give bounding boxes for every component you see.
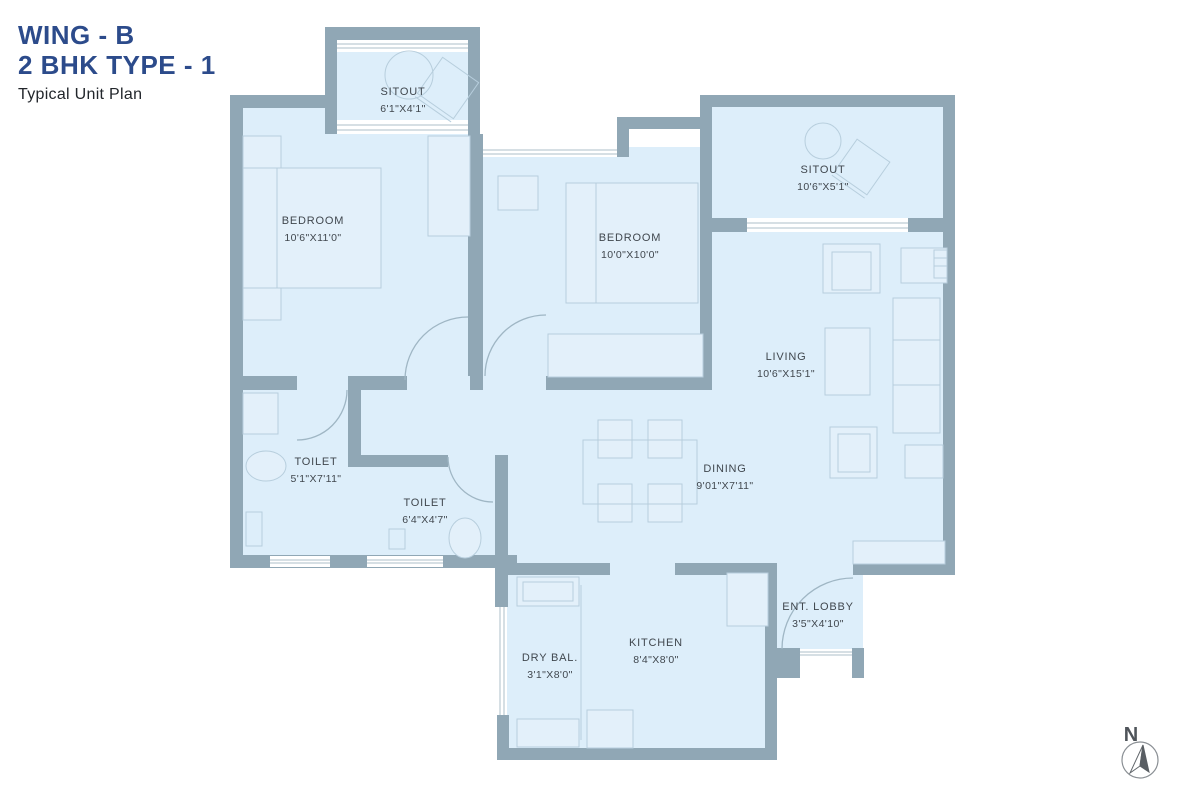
room-label-bedroom-mid: BEDROOM [599, 232, 661, 244]
washer-icon [517, 577, 579, 606]
wall-segment [495, 455, 508, 607]
kitchen-counter-icon [727, 573, 768, 626]
ledge-icon [853, 541, 945, 564]
room-dims-dry-balcony: 3'1"X8'0" [527, 669, 572, 681]
wall-segment [348, 376, 407, 390]
plan-subtitle: Typical Unit Plan [18, 86, 216, 104]
wc-icon [449, 518, 481, 558]
dining-chair-icon [598, 420, 632, 458]
room-label-kitchen: KITCHEN [629, 637, 683, 649]
wall-segment [943, 95, 955, 575]
window [270, 556, 330, 567]
unit-type-title: 2 BHK TYPE - 1 [18, 50, 216, 80]
room-label-living: LIVING [766, 351, 807, 363]
wall-segment [468, 27, 480, 134]
wall-segment [497, 563, 610, 575]
door-gap [407, 376, 470, 390]
wall-segment [852, 648, 864, 678]
window [497, 607, 507, 715]
room-dims-toilet-mid: 6'4"X4'7" [402, 514, 447, 526]
room-label-toilet-left: TOILET [294, 456, 337, 468]
wall-segment [617, 117, 629, 157]
room-label-toilet-mid: TOILET [403, 497, 446, 509]
center-table-icon [825, 328, 870, 395]
wall-segment [325, 27, 337, 134]
window [337, 120, 468, 134]
window [747, 218, 908, 232]
wall-segment [775, 648, 800, 678]
room-label-sitout-right: SITOUT [801, 164, 846, 176]
wall-segment [908, 218, 943, 232]
room-label-bedroom-left: BEDROOM [282, 215, 344, 227]
room-label-dry-balcony: DRY BAL. [522, 652, 578, 664]
wall-segment [712, 218, 747, 232]
kitchen-counter-icon [587, 710, 633, 748]
window [367, 556, 443, 567]
room-dims-kitchen: 8'4"X8'0" [633, 654, 678, 666]
window [337, 40, 468, 52]
entry-step [800, 649, 852, 658]
room-dims-sitout-top: 6'1"X4'1" [380, 103, 425, 115]
room-dims-toilet-left: 5'1"X7'11" [291, 473, 342, 485]
wall-segment [230, 95, 243, 568]
nightstand-icon [243, 288, 281, 320]
dining-chair-icon [598, 484, 632, 522]
room-dims-living: 10'6"X15'1" [757, 368, 815, 380]
console-icon [934, 250, 947, 278]
window [483, 147, 617, 157]
sofa-icon [893, 298, 940, 433]
room-dims-bedroom-mid: 10'0"X10'0" [601, 249, 659, 261]
wall-segment [497, 715, 509, 760]
wall-segment [325, 27, 480, 40]
side-table-icon [905, 445, 943, 478]
dining-chair-icon [648, 484, 682, 522]
bed-icon [243, 168, 381, 288]
room-label-dining: DINING [703, 463, 746, 475]
wc-icon [246, 451, 286, 481]
wardrobe-icon [428, 136, 470, 236]
door-gap [483, 376, 546, 390]
floor-plan-page: WING - B 2 BHK TYPE - 1 Typical Unit Pla… [0, 0, 1180, 800]
vanity-icon [243, 393, 278, 434]
wall-segment [617, 117, 712, 129]
door-gap [297, 376, 348, 390]
wardrobe-icon [548, 334, 703, 377]
room-dims-bedroom-left: 10'6"X11'0" [284, 232, 341, 244]
wall-segment [348, 390, 361, 455]
wall-segment [497, 748, 777, 760]
room-label-sitout-top: SITOUT [381, 86, 426, 98]
floor-plan-svg: SITOUT 6'1"X4'1" BEDROOM 10'6"X11'0" BED… [0, 0, 1180, 800]
wall-segment [348, 455, 448, 467]
wall-segment [230, 95, 337, 108]
door-gap [448, 455, 495, 467]
utility-shelf-icon [517, 719, 579, 747]
room-dims-ent-lobby: 3'5"X4'10" [792, 618, 844, 630]
wall-segment [243, 376, 297, 390]
dining-chair-icon [648, 420, 682, 458]
nightstand-icon [498, 176, 538, 210]
room-dims-sitout-right: 10'6"X5'1" [797, 181, 849, 193]
wall-segment [700, 95, 955, 107]
wing-title: WING - B [18, 20, 216, 50]
room-label-ent-lobby: ENT. LOBBY [782, 601, 854, 613]
nightstand-icon [243, 136, 281, 168]
room-dims-dining: 9'01"X7'11" [696, 480, 753, 492]
wall-segment [853, 563, 955, 575]
wall-segment [546, 376, 712, 390]
north-compass: N [1122, 724, 1158, 778]
title-block: WING - B 2 BHK TYPE - 1 Typical Unit Pla… [18, 20, 216, 104]
